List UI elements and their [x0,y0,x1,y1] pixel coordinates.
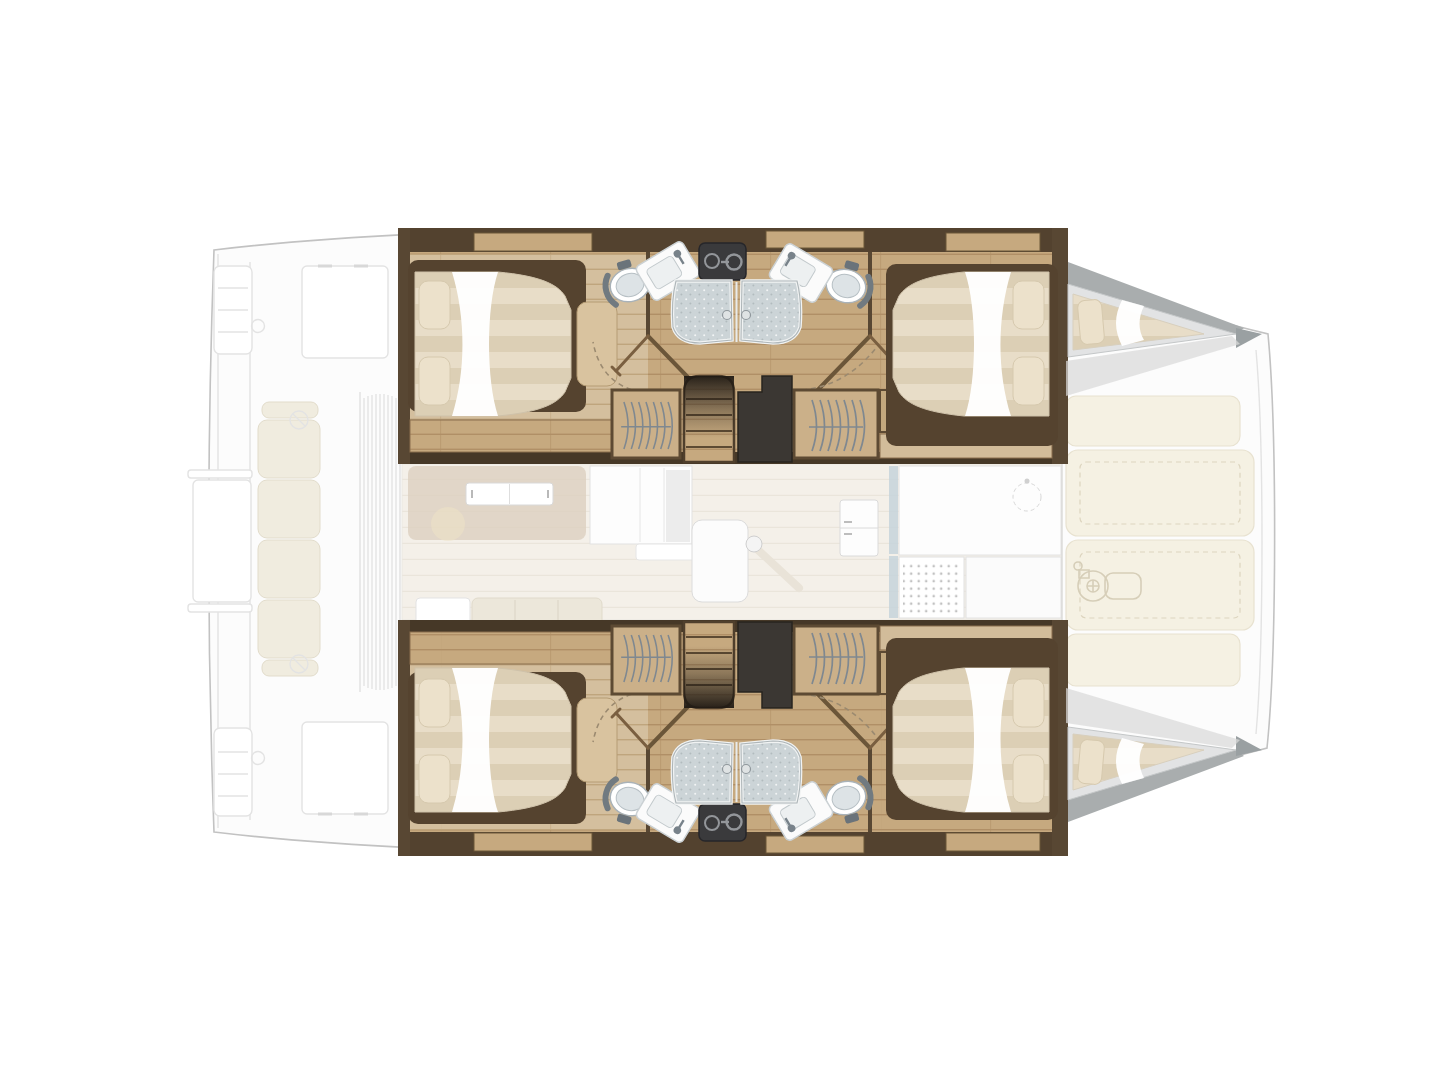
salon-galley [402,464,1062,640]
galley-counter-edge [889,556,898,618]
davit-bar [188,470,252,478]
foredeck-sunpad [1066,450,1254,536]
davit-bar [188,604,252,612]
cockpit-bench-cushion [258,480,320,538]
deck-hatch [302,722,388,814]
mast-ball [746,536,762,552]
sliding-door-louvers [364,394,396,690]
deck-hatch [302,266,388,358]
galley-counter-edge [889,466,898,554]
cockpit-bench-cushion [258,540,320,598]
galley-counter [966,557,1061,618]
cockpit-bench-cushion [258,420,320,478]
galley-faucet [1025,479,1030,484]
foredeck-sunpad [1066,396,1240,446]
foredeck-sunpads [1066,396,1254,686]
foredeck-sunpad [1066,540,1254,630]
salon-table [692,520,748,602]
cabinet-panel [666,470,690,542]
cockpit-table [193,480,251,602]
transom-step [214,728,252,816]
deck-plan-canvas [0,0,1440,1080]
deck-plan-page [0,0,1440,1080]
cockpit-bench-cushion [262,402,318,418]
lamp-glow [431,507,465,541]
stove-grid [903,561,960,614]
galley-counter [899,466,1061,555]
foredeck-sunpad [1066,634,1240,686]
cockpit-bench-cushion [258,600,320,658]
